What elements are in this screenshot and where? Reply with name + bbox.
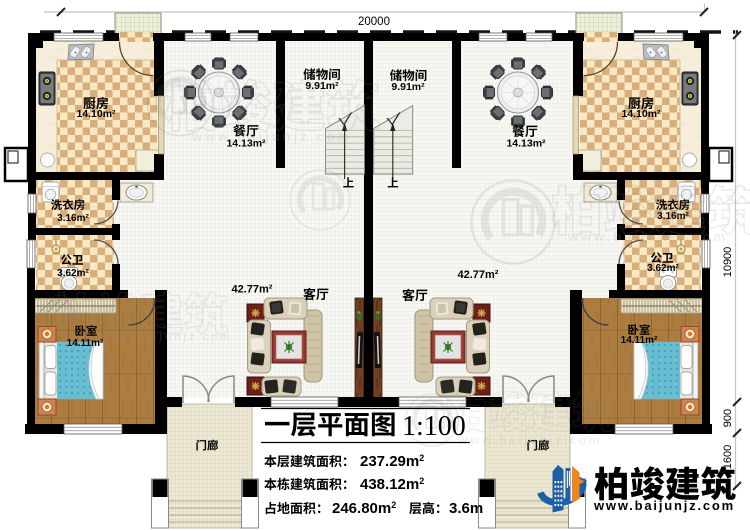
svg-text:10900: 10900 [722,247,734,278]
svg-text:www.baijunjz.com: www.baijunjz.com [457,433,602,447]
svg-text:www.baijunjz.com: www.baijunjz.com [191,129,352,144]
svg-text:9.91m²: 9.91m² [391,81,425,93]
svg-text:1:100: 1:100 [402,411,466,442]
svg-text:3.62m²: 3.62m² [647,263,679,274]
svg-text:3.16m²: 3.16m² [57,213,89,224]
svg-text:3.6m: 3.6m [449,500,483,517]
svg-text:900: 900 [722,409,734,427]
svg-text:3.62m²: 3.62m² [57,268,89,279]
svg-text:42.77m²: 42.77m² [458,269,499,281]
svg-text:246.80m2: 246.80m2 [332,500,396,517]
svg-text:14.10m²: 14.10m² [76,108,116,120]
svg-text:www.baijunjz.com: www.baijunjz.com [593,498,735,513]
svg-text:www.baijunjz.com: www.baijunjz.com [97,331,233,343]
svg-text:14.13m²: 14.13m² [506,138,546,150]
svg-text:1600: 1600 [722,445,734,469]
svg-text:14.10m²: 14.10m² [621,108,661,120]
svg-text:www.baijunjz.com: www.baijunjz.com [567,229,728,244]
svg-text:14.11m²: 14.11m² [621,335,658,346]
svg-text:237.29m2: 237.29m2 [360,453,424,470]
svg-text:42.77m²: 42.77m² [232,284,273,296]
svg-text:438.12m2: 438.12m2 [360,476,424,493]
svg-text:20000: 20000 [358,16,390,28]
